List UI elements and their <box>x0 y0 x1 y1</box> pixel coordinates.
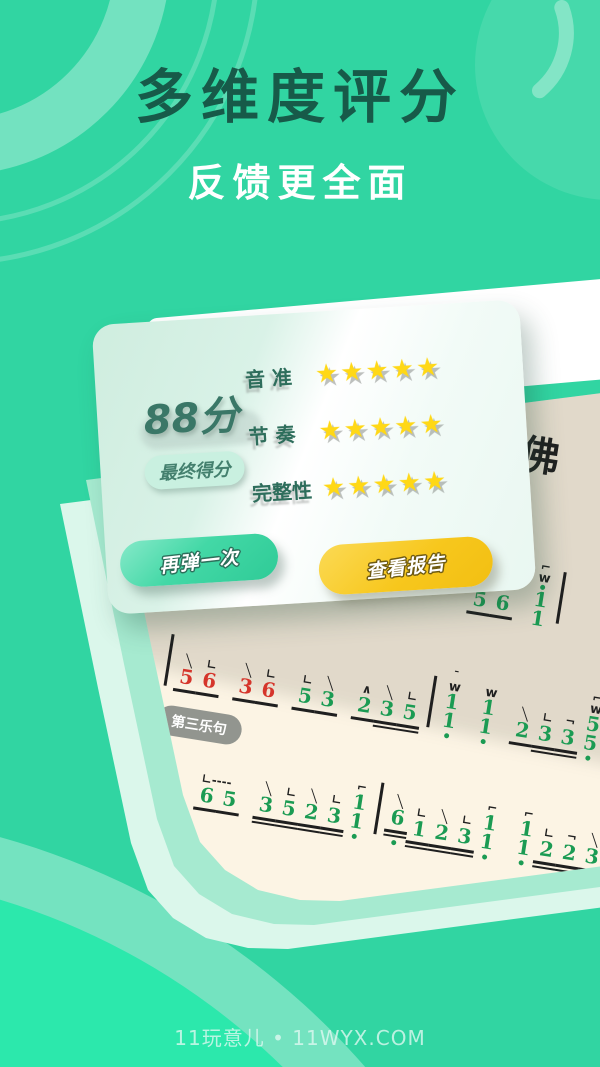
beam-underline <box>553 746 577 758</box>
fingering-mark-icon: ⌐w <box>538 561 552 584</box>
note-stack: ¯w11 <box>435 669 468 740</box>
watermark: 11玩意儿 • 11WYX.COM <box>0 1022 600 1051</box>
octave-dot <box>518 860 524 866</box>
octave-dot <box>351 834 357 840</box>
note-number: 3 <box>326 805 343 828</box>
beam-underline <box>274 817 298 829</box>
app-promo-screen: 多维度评分 反馈更全面 佛 ∟----56⌐w11╲5∟6╲3∟6∟5╲3∧2╲… <box>0 0 600 1067</box>
octave-dot <box>480 739 486 745</box>
rating-label: 音 准 <box>244 360 316 393</box>
star-rating-icons: ★★★★★ <box>314 352 442 390</box>
note-number: 1 <box>515 838 532 859</box>
note-stack: w11 <box>471 681 503 746</box>
barline <box>556 572 567 624</box>
barline <box>426 676 437 728</box>
note-number: 3 <box>237 675 254 698</box>
note-number: 5 <box>280 797 297 820</box>
page-subtitle: 反馈更全面 <box>0 152 600 207</box>
beam-underline <box>320 825 344 837</box>
note-number: 6 <box>260 679 277 702</box>
note-number: 3 <box>559 726 576 749</box>
octave-dot <box>391 840 397 846</box>
note-number: 2 <box>561 842 578 865</box>
beam-underline <box>291 705 315 717</box>
report-button[interactable]: 查看报告 <box>317 535 494 596</box>
note-stack: ⌐11 <box>473 796 505 861</box>
octave-dot <box>482 854 488 860</box>
beam-underline <box>231 695 255 707</box>
note-number: 1 <box>529 609 546 630</box>
note-number: 5 <box>297 685 314 708</box>
note-number: 6 <box>494 592 511 615</box>
note-number: 2 <box>303 801 320 824</box>
beam-underline <box>373 718 397 730</box>
report-button-label: 查看报告 <box>365 548 448 584</box>
score-caption: 最终得分 <box>144 450 246 490</box>
note-number: 1 <box>411 818 428 841</box>
note-number: 5 <box>582 733 599 754</box>
star-rating-icons: ★★★★★ <box>321 465 449 503</box>
note-number: 5 <box>178 666 195 689</box>
beam-underline <box>192 804 216 816</box>
retry-button[interactable]: 再弹一次 <box>119 532 280 588</box>
beam-underline <box>313 708 337 720</box>
note-number: 2 <box>538 838 555 861</box>
note-number: 6 <box>201 669 218 692</box>
score-block: 88分 最终得分 <box>120 381 266 491</box>
beam-underline <box>254 699 278 711</box>
note-number: 3 <box>583 845 600 868</box>
beam-underline <box>395 721 419 733</box>
barline <box>373 782 384 834</box>
note-number: 1 <box>479 832 496 853</box>
note-number: 3 <box>456 825 473 848</box>
barline <box>164 634 175 686</box>
beam-underline <box>172 686 196 698</box>
beam-underline <box>297 821 321 833</box>
note-number: 2 <box>356 694 373 717</box>
rating-label: 节 奏 <box>248 417 320 450</box>
note-number: 5 <box>401 701 418 724</box>
octave-dot <box>444 733 450 739</box>
octave-dot <box>585 755 591 761</box>
ratings: 音 准★★★★★节 奏★★★★★完整性★★★★★ <box>243 338 450 521</box>
retry-button-label: 再弹一次 <box>158 542 241 578</box>
beam-underline <box>450 845 474 857</box>
note-number: 6 <box>198 784 215 807</box>
note-number: 2 <box>514 719 531 742</box>
note-number: 1 <box>477 716 494 737</box>
beam-underline <box>532 858 556 870</box>
header: 多维度评分 反馈更全面 <box>0 0 600 207</box>
note-stack: ⌐11 <box>342 776 374 841</box>
note-number: 3 <box>379 698 396 721</box>
score-card: 88分 最终得分 音 准★★★★★节 奏★★★★★完整性★★★★★ 再弹一次 查… <box>92 299 537 615</box>
rating-label: 完整性 <box>251 474 323 507</box>
beam-underline <box>531 743 555 755</box>
final-score: 88分 <box>120 381 263 447</box>
beam-underline <box>508 739 532 751</box>
beam-underline <box>350 714 374 726</box>
note-number: 3 <box>319 688 336 711</box>
beam-underline <box>405 838 429 850</box>
note-number: 2 <box>433 822 450 845</box>
beam-underline <box>252 814 276 826</box>
beam-underline <box>427 842 451 854</box>
beam-underline <box>383 827 407 839</box>
beam-underline <box>195 690 219 702</box>
note-number: 6 <box>389 806 406 829</box>
note-number: 3 <box>257 794 274 817</box>
beam-underline <box>215 808 239 820</box>
note-number: 5 <box>221 788 238 811</box>
rating-row: 完整性★★★★★ <box>250 452 450 521</box>
star-rating-icons: ★★★★★ <box>318 408 446 446</box>
page-title: 多维度评分 <box>0 50 600 134</box>
note-number: 1 <box>441 710 458 731</box>
note-number: 3 <box>537 723 554 746</box>
note-number: 1 <box>348 811 365 832</box>
